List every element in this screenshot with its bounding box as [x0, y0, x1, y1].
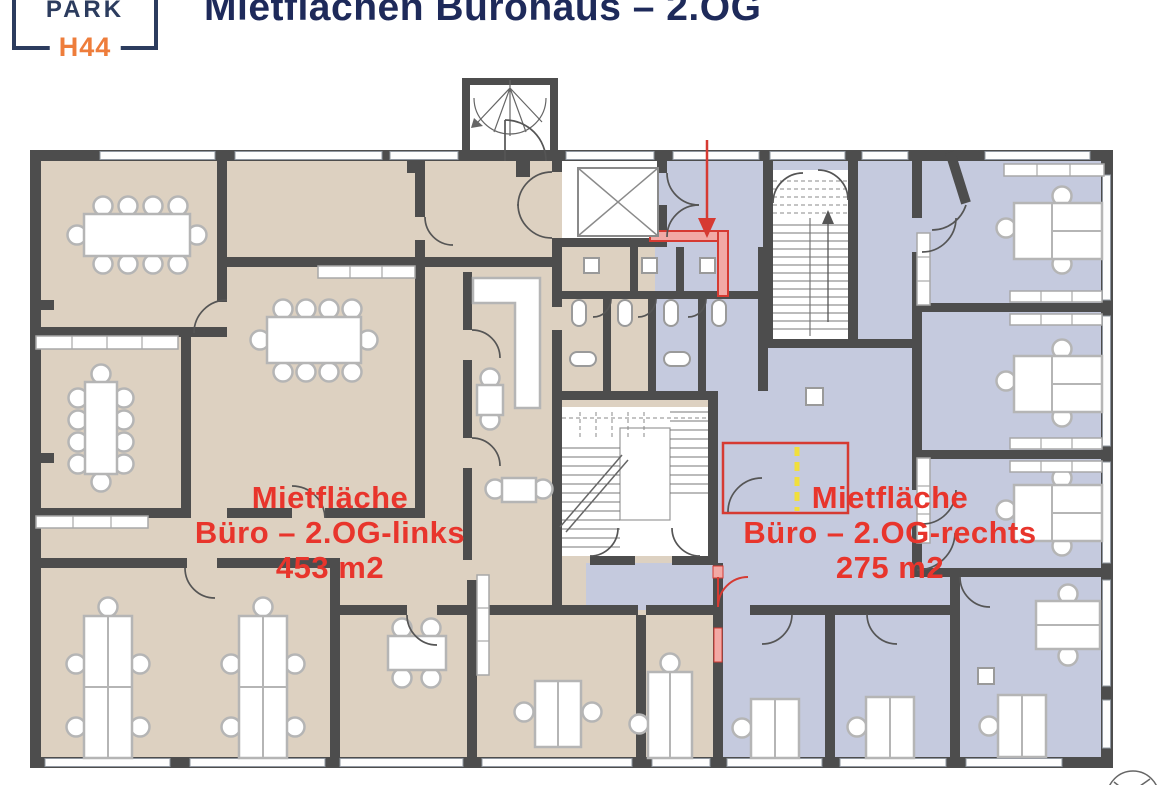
zone-left-label-descriptor: Büro – 2.OG-links	[195, 515, 465, 550]
zone-left-label-area: 453 m2	[276, 550, 384, 585]
zone-right-label-descriptor: Büro – 2.OG-rechts	[743, 515, 1036, 550]
elevator-icon	[578, 168, 658, 236]
zone-right-label-name: Mietfläche	[812, 480, 969, 515]
compass-icon	[1107, 771, 1159, 785]
zone-left-label-name: Mietfläche	[252, 480, 409, 515]
zone-right-label-area: 275 m2	[836, 550, 944, 585]
page: PARK H44 Mietflächen Bürohaus – 2.OG	[0, 0, 1170, 785]
floor-plan: Mietfläche Büro – 2.OG-links 453 m2 Miet…	[0, 0, 1170, 785]
